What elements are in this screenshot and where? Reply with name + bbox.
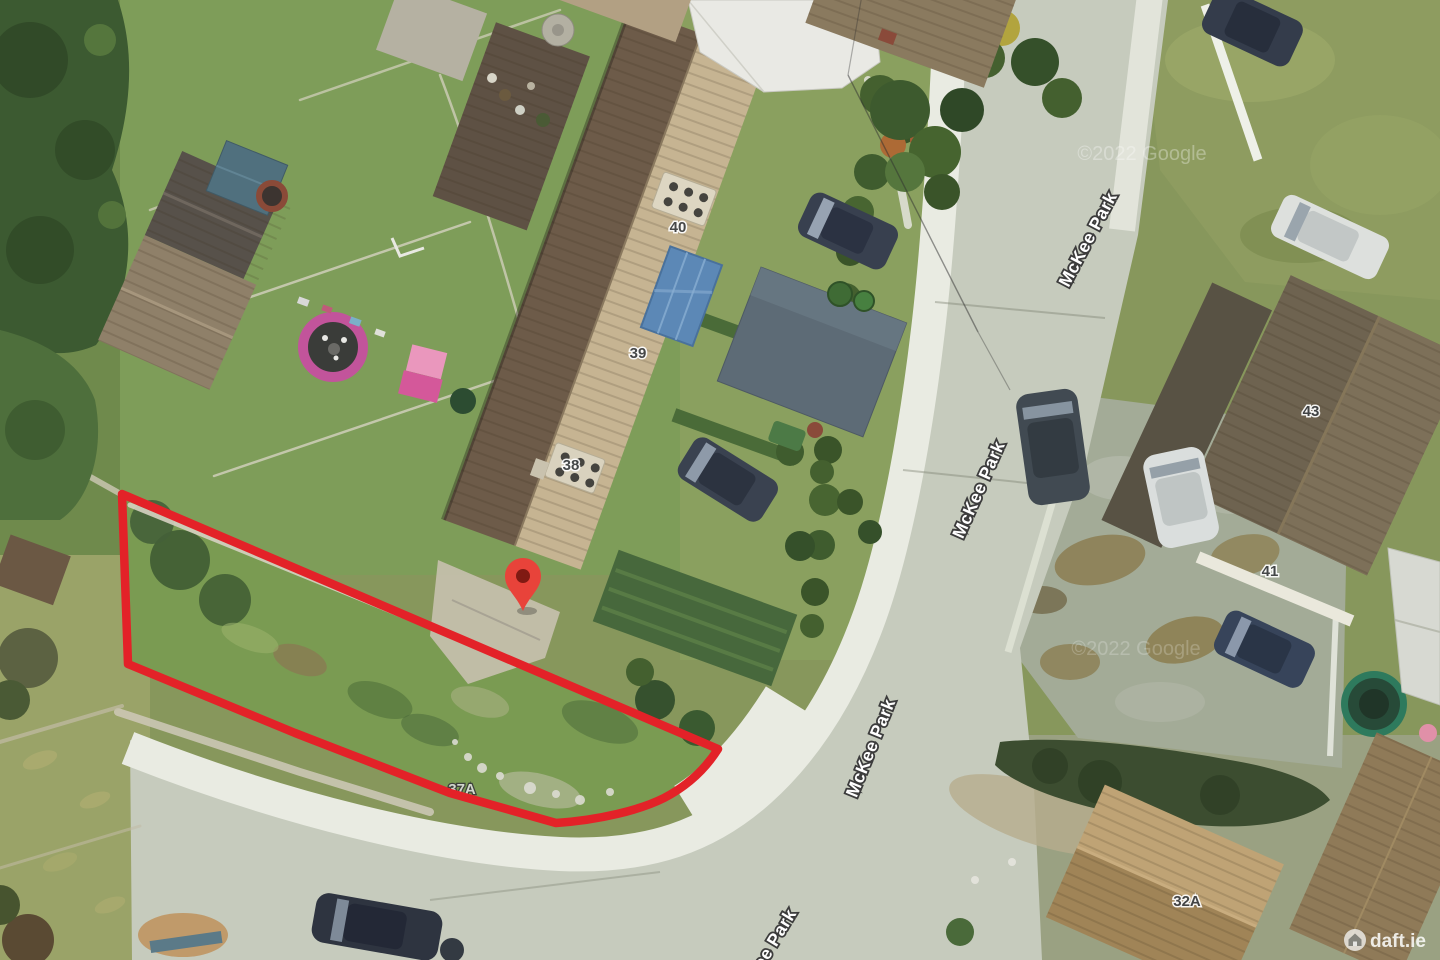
daft-logo-text: daft.ie <box>1370 931 1426 952</box>
google-watermark: ©2022 Google <box>1071 638 1200 660</box>
house-number-41: 41 <box>1262 563 1279 580</box>
house-number-39: 39 <box>630 345 647 362</box>
house-number-32a: 32A <box>1173 893 1201 910</box>
house-number-40: 40 <box>670 219 687 236</box>
house-number-43: 43 <box>1303 403 1320 420</box>
aerial-map[interactable]: 40 39 38 37A 43 41 32A McKee Park McKee … <box>0 0 1440 960</box>
house-number-38: 38 <box>563 457 580 474</box>
daft-watermark: daft.ie <box>1344 929 1426 952</box>
google-watermark: ©2022 Google <box>1077 143 1206 165</box>
